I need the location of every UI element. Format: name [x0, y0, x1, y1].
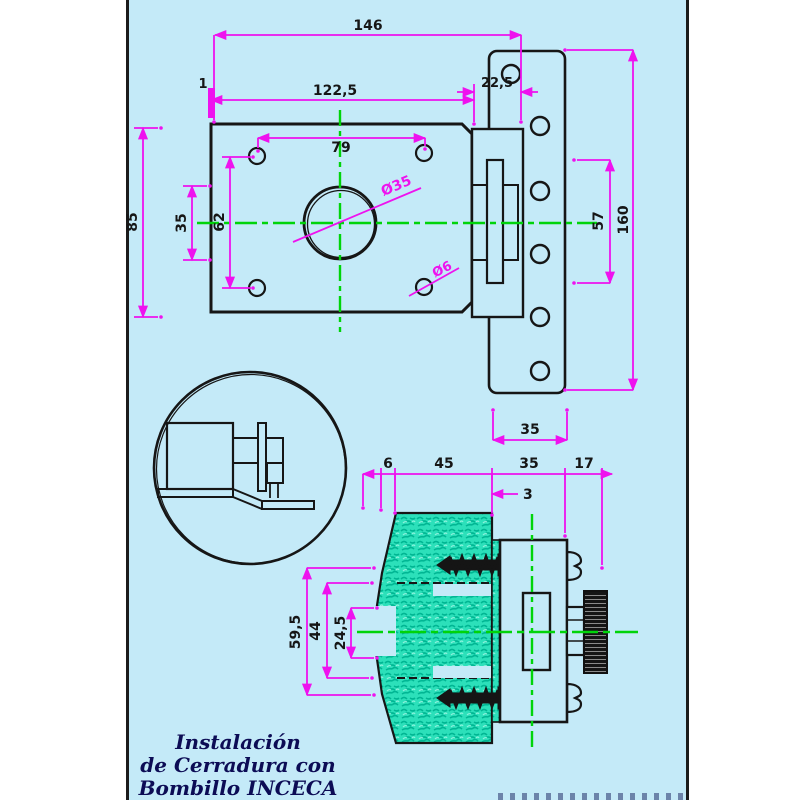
technical-drawing-page: 146 122,5 1 22,5 79 Ø35: [0, 0, 800, 800]
bolt: [487, 160, 503, 283]
detail-view: [154, 372, 346, 564]
dim-case-depth: 35: [519, 456, 538, 472]
body-ear-top: [567, 552, 581, 580]
detail-faceplate: [258, 423, 266, 491]
detail-strike-lip-right: [262, 501, 314, 509]
screw-slot: [433, 666, 491, 678]
dim-screw-spacing-h: 79: [331, 140, 350, 156]
dim-center-height: 35: [174, 213, 190, 232]
drawing-title: Instalación de Cerradura con Bombillo IN…: [118, 731, 358, 800]
cutoff-text-fragment: [498, 793, 688, 800]
detail-case: [167, 423, 233, 489]
dim-clearance: 3: [523, 487, 533, 503]
dim-strike-height: 160: [616, 205, 632, 234]
lock-installation-drawing: 146 122,5 1 22,5 79 Ø35: [0, 0, 800, 800]
strike-hole: [531, 117, 549, 135]
dim-cutout-height: 59,5: [288, 615, 304, 650]
title-line-3: Bombillo INCECA Plana: [118, 777, 358, 800]
dim-lip: 6: [383, 456, 393, 472]
dim-knob-depth: 17: [574, 456, 593, 472]
screw-slot: [433, 584, 491, 596]
dim-strike-width: 35: [520, 422, 539, 438]
strike-hole: [531, 182, 549, 200]
strike-hole: [531, 245, 549, 263]
dim-edge-gap: 1: [198, 77, 207, 92]
dim-strike-overhang: 22,5: [481, 76, 513, 91]
dim-case-height: 85: [125, 212, 141, 231]
strike-hole: [531, 308, 549, 326]
dim-case-height-section: 44: [308, 621, 324, 641]
dim-bolt-height: 24,5: [333, 616, 349, 651]
dim-door-thickness: 45: [434, 456, 453, 472]
dim-screw-spacing-v: 62: [212, 212, 228, 231]
detail-strike-lip-left: [158, 489, 233, 497]
front-view: 146 122,5 1 22,5 79 Ø35: [125, 18, 633, 440]
title-line-2: de Cerradura con: [118, 754, 358, 777]
body-ear-bottom: [567, 684, 581, 712]
title-line-1: Instalación: [118, 731, 358, 754]
lock-case-front: [211, 124, 523, 317]
detail-bolt: [267, 463, 283, 483]
dim-case-width: 122,5: [313, 83, 357, 99]
dim-strike-screw-span: 57: [591, 211, 607, 230]
strike-hole: [531, 362, 549, 380]
dim-total-width: 146: [353, 18, 382, 34]
